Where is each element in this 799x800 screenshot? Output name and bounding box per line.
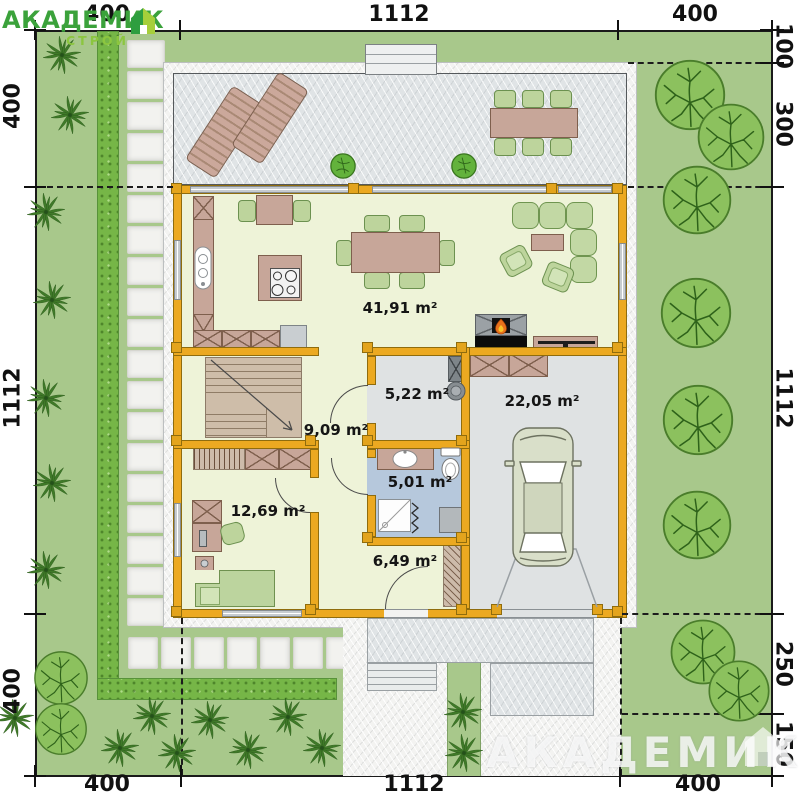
sofa-module — [570, 256, 597, 283]
dim-right-5: 150 — [771, 721, 796, 767]
log-end — [348, 183, 359, 194]
passage-hall-corridor — [319, 440, 367, 449]
desk — [192, 523, 222, 552]
dim-top-center: 1112 — [368, 2, 429, 27]
log-end — [362, 532, 373, 543]
wall-living-garage — [367, 347, 627, 356]
kitchen-cabinet — [251, 330, 280, 348]
window-study-south — [222, 610, 302, 617]
driveway — [490, 663, 594, 716]
wall-bathroom-north — [367, 440, 470, 449]
terrace-chair — [494, 138, 516, 156]
dim-left-middle: 1112 — [1, 367, 26, 428]
setback-line — [620, 618, 622, 775]
dim-tick — [760, 186, 784, 188]
paving-stone — [127, 195, 165, 223]
floor-garage — [461, 347, 619, 610]
window-study — [174, 503, 181, 557]
paving-stone — [127, 381, 165, 409]
paving-stone — [127, 288, 165, 316]
dining-chair — [399, 215, 425, 232]
paving-stone — [127, 567, 165, 595]
entry-wardrobe — [443, 541, 461, 607]
paving-stone — [127, 257, 165, 285]
kitchen-cabinet — [193, 196, 214, 220]
setback-line — [622, 613, 771, 615]
dim-bottom-left: 400 — [84, 772, 130, 797]
wall-garage-west — [461, 347, 470, 609]
dining-chair — [399, 272, 425, 289]
dim-right-1: 100 — [771, 23, 796, 69]
dim-right-3: 1112 — [771, 367, 796, 428]
window-terrace-glazing — [190, 186, 350, 193]
window-kitchen — [174, 240, 181, 300]
kitchen-table — [256, 195, 293, 225]
brand-logo: АКАДЕМИК СТРОЙ — [2, 4, 172, 52]
wall-utility-west — [367, 356, 376, 385]
dining-chair — [364, 272, 390, 289]
dim-right-2: 300 — [771, 101, 796, 147]
dining-table — [351, 232, 440, 273]
log-end — [171, 342, 182, 353]
porch — [367, 618, 594, 663]
dim-top-right: 400 — [672, 2, 718, 27]
paving-stone — [127, 350, 165, 378]
dim-tick — [24, 613, 46, 615]
kitchen-chair — [238, 200, 256, 222]
wall-bathroom-south — [367, 537, 470, 546]
dim-left-bottom: 400 — [1, 668, 26, 714]
log-end — [171, 183, 182, 194]
room-label-garage: 22,05 m² — [505, 392, 580, 410]
paving-stone — [127, 598, 165, 626]
dining-chair — [336, 240, 352, 266]
garage-door-opening — [497, 609, 597, 618]
log-end — [612, 342, 623, 353]
staircase — [205, 357, 302, 438]
porch-steps — [367, 663, 437, 691]
paving-stone — [127, 536, 165, 564]
setback-line — [622, 713, 771, 715]
setback-line — [628, 186, 771, 188]
dim-left-top: 400 — [1, 83, 26, 129]
room-label-utility: 5,22 m² — [385, 385, 449, 403]
fridge — [280, 325, 307, 348]
setback-line — [628, 62, 771, 64]
wardrobe-rail — [193, 448, 245, 470]
wall-bedroom-north — [173, 440, 319, 449]
wall-bathroom-west — [367, 449, 376, 458]
log-end — [456, 604, 467, 615]
log-end — [305, 604, 316, 615]
log-end — [456, 342, 467, 353]
sofa-module — [539, 202, 566, 229]
room-label-hallway: 9,09 m² — [304, 421, 368, 439]
paving-stone — [227, 637, 257, 669]
garden-path — [447, 663, 481, 776]
fireplace-top — [475, 314, 527, 336]
terrace-dining-table — [490, 108, 578, 138]
log-end — [456, 532, 467, 543]
paving-stone — [293, 637, 323, 669]
log-end — [362, 342, 373, 353]
wardrobe-section — [279, 448, 313, 470]
shower — [378, 499, 411, 532]
dining-chair — [439, 240, 455, 266]
paving-stone — [161, 637, 191, 669]
water-heater — [439, 507, 463, 533]
paving-stone — [127, 102, 165, 130]
log-end — [491, 604, 502, 615]
kitchen-cabinet — [193, 330, 222, 348]
paving-stone — [127, 474, 165, 502]
terrace-chair — [522, 138, 544, 156]
dim-tick — [760, 713, 784, 715]
dim-tick — [760, 775, 784, 777]
paving-stone — [127, 133, 165, 161]
log-end — [456, 435, 467, 446]
dim-tick — [24, 775, 46, 777]
logo-house-icon — [126, 4, 160, 38]
log-end — [592, 604, 603, 615]
dim-tick — [179, 20, 181, 40]
setback-line — [37, 186, 173, 188]
dim-right-4: 250 — [771, 641, 796, 687]
bed — [195, 570, 275, 607]
site-plan: 41,91 m² 9,09 m² 5,22 m² 22,05 m² 5,01 m… — [0, 0, 799, 800]
garage-cabinet-door — [470, 353, 509, 377]
kitchen-cabinet — [222, 330, 251, 348]
kitchen-chair — [293, 200, 311, 222]
dim-tick — [24, 186, 46, 188]
window-living — [619, 243, 626, 300]
wall-bedroom-east — [310, 449, 319, 478]
log-end — [612, 606, 623, 617]
terrace-steps — [365, 44, 437, 75]
dining-chair — [364, 215, 390, 232]
dim-tick — [760, 613, 784, 615]
terrace-chair — [550, 138, 572, 156]
room-label-study: 12,69 m² — [231, 502, 306, 520]
garage-cabinet-door — [509, 353, 548, 377]
stove — [270, 268, 300, 298]
wardrobe-section — [245, 448, 279, 470]
paving-stone — [194, 637, 224, 669]
paving-stone — [127, 505, 165, 533]
paving-stone — [127, 226, 165, 254]
paving-stone — [128, 637, 158, 669]
wall-bathroom-west — [367, 495, 376, 537]
wall-living-hall — [173, 347, 319, 356]
terrace-chair — [522, 90, 544, 108]
sofa-module — [566, 202, 593, 229]
sofa-module — [570, 229, 597, 256]
paving-stone — [127, 71, 165, 99]
room-label-entry: 6,49 m² — [373, 552, 437, 570]
bathroom-vanity — [377, 448, 434, 470]
desk-cabinet — [192, 500, 222, 523]
setback-line — [181, 618, 183, 775]
terrace-chair — [550, 90, 572, 108]
dim-tick — [180, 765, 182, 787]
window-terrace-glazing — [558, 186, 612, 193]
terrace-chair — [494, 90, 516, 108]
brand-subname: СТРОЙ — [66, 33, 129, 48]
dim-bottom-right: 400 — [675, 772, 721, 797]
paving-stone — [127, 443, 165, 471]
coffee-table — [531, 234, 564, 251]
room-label-bathroom: 5,01 m² — [388, 473, 452, 491]
passage-living-hall — [319, 347, 367, 356]
dim-tick — [619, 765, 621, 787]
dim-bottom-center: 1112 — [383, 772, 444, 797]
log-end — [171, 435, 182, 446]
paving-stone — [260, 637, 290, 669]
paving-stone — [127, 319, 165, 347]
sofa-module — [512, 202, 539, 229]
log-end — [171, 606, 182, 617]
log-end — [546, 183, 557, 194]
window-terrace-glazing — [372, 186, 550, 193]
log-end — [612, 183, 623, 194]
wall-bedroom-east — [310, 512, 319, 609]
room-label-living: 41,91 m² — [363, 299, 438, 317]
entry-door-opening — [384, 609, 428, 618]
side-table — [195, 556, 214, 571]
dim-tick — [617, 20, 619, 40]
paving-stone — [127, 412, 165, 440]
